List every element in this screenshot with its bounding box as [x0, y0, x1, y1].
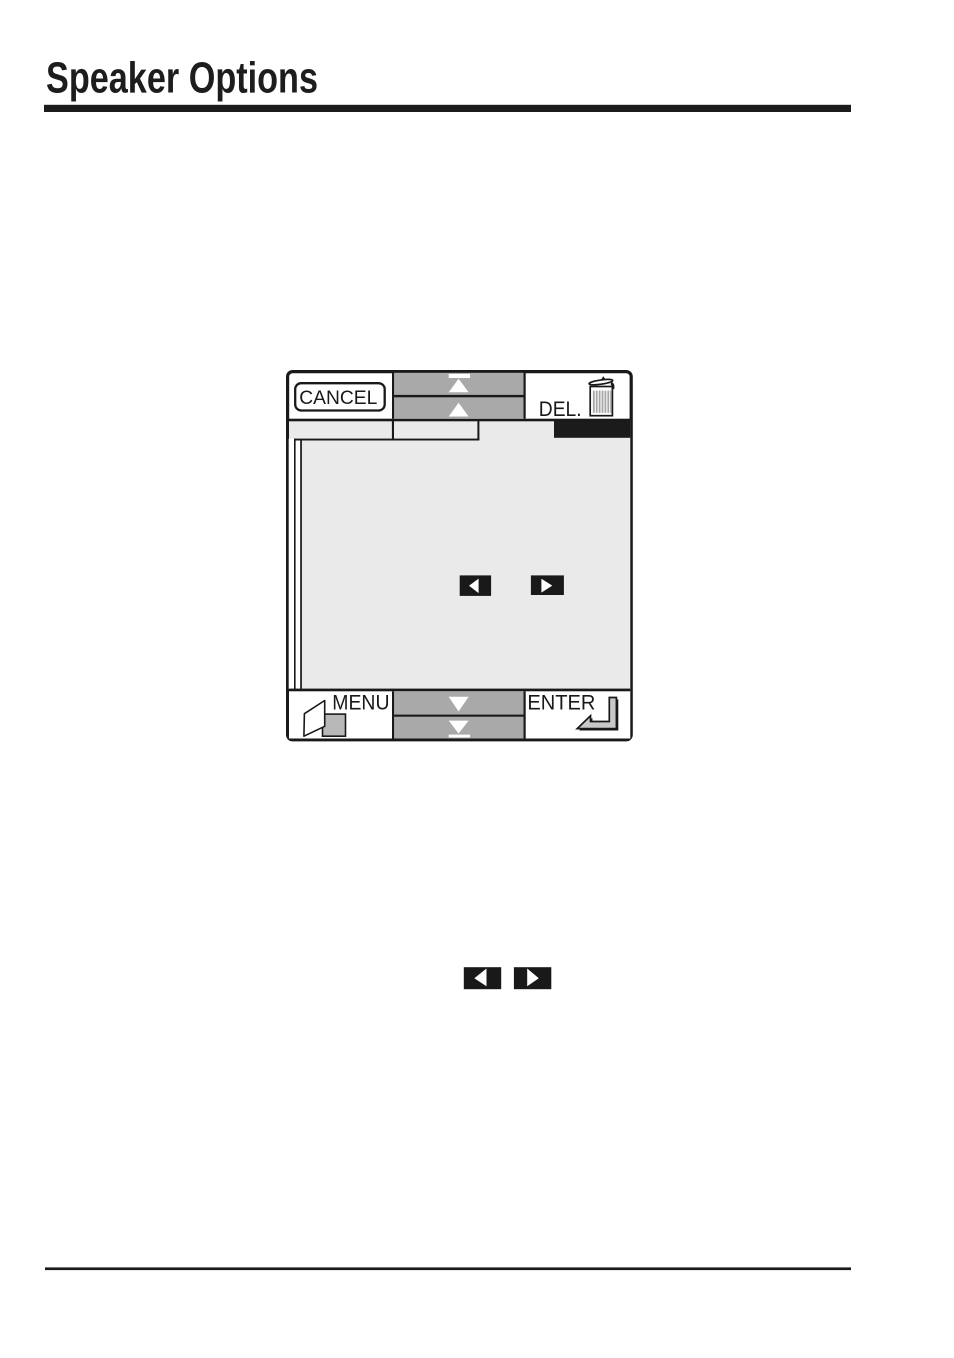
svg-text:CANCEL: CANCEL	[299, 387, 377, 409]
svg-text:MENU: MENU	[332, 691, 389, 714]
svg-text:Speaker Options: Speaker Options	[46, 54, 318, 102]
svg-text:ENTER: ENTER	[527, 692, 595, 715]
svg-text:DEL.: DEL.	[539, 396, 582, 421]
